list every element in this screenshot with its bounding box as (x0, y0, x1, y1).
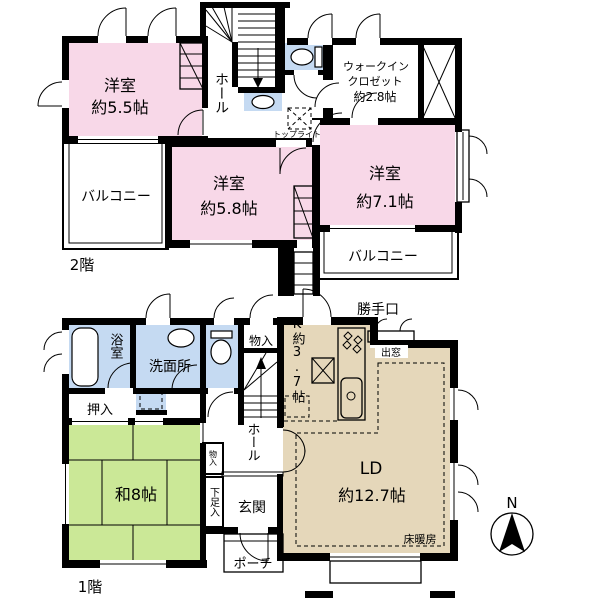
stairs-1f (244, 353, 277, 418)
label-balcony-right: バルコニー (348, 249, 418, 265)
label-heating: 床暖房 (404, 532, 437, 546)
label-skylight: トップライト (273, 130, 321, 139)
label-ld-name: LD (360, 459, 383, 479)
toilet-2f-icon (291, 47, 322, 67)
terrace-step (330, 561, 421, 583)
label-b55-name: 洋室 (104, 76, 136, 95)
label-shoes: 下足入 (208, 487, 220, 517)
label-washitsu: 和8帖 (115, 485, 157, 504)
label-wic-size: 約2.8帖 (353, 89, 396, 104)
label-wic-2: クロゼット (348, 75, 403, 88)
label-bath: 浴室 (108, 333, 124, 359)
fence-stub-left (305, 591, 333, 598)
label-kitchen: K約3.7帖 (290, 317, 306, 403)
stairs-up-arrow (256, 357, 266, 369)
label-b58-name: 洋室 (213, 174, 245, 193)
compass-needle (499, 513, 525, 552)
label-b71-name: 洋室 (369, 164, 401, 183)
washbasin-2f-icon (252, 96, 274, 109)
skylight-box (288, 108, 311, 129)
label-b71-size: 約7.1帖 (356, 192, 413, 211)
label-hall-1f: ホール (245, 423, 260, 462)
toilet-1f-icon (211, 331, 232, 364)
fence-stub-right (430, 591, 455, 598)
floorplan: 洋室 約5.5帖 ホール ウォークイン クロゼット 約2.8帖 洋室 約7.1帖… (0, 0, 600, 600)
compass: N (491, 494, 533, 555)
label-wic-1: ウォークイン (343, 60, 409, 73)
label-b58-size: 約5.8帖 (200, 199, 257, 218)
void-x-box (422, 44, 456, 120)
label-storage-small: 物入 (209, 449, 218, 466)
shaft-box (294, 252, 313, 294)
label-washroom: 洗面所 (149, 359, 191, 375)
label-entrance: 玄関 (238, 499, 266, 516)
washbasin-1f-icon (168, 329, 194, 347)
floor1-plan: 浴室 洗面所 物入 K約3.7帖 勝手口 出窓 押入 和8帖 物入 ホール 下足… (44, 289, 478, 598)
label-balcony-left: バルコニー (81, 189, 151, 205)
label-backdoor: 勝手口 (357, 302, 399, 318)
genkan-step (222, 472, 283, 476)
label-oshiire: 押入 (87, 403, 113, 418)
bathtub-icon (72, 328, 98, 386)
label-floor-2: 2階 (70, 256, 95, 274)
stairs-down-arrow (253, 78, 263, 88)
compass-north-label: N (506, 494, 517, 512)
label-floor-1: 1階 (78, 578, 103, 596)
label-ld-size: 約12.7帖 (338, 486, 406, 505)
label-b55-size: 約5.5帖 (91, 98, 148, 117)
floor2-plan: 洋室 約5.5帖 ホール ウォークイン クロゼット 約2.8帖 洋室 約7.1帖… (38, 2, 487, 296)
label-hall-2f: ホール (213, 72, 229, 114)
room-bedroom-5-8 (172, 147, 313, 240)
label-porch: ポーチ (233, 557, 272, 572)
label-storage: 物入 (249, 334, 273, 348)
label-baywindow: 出窓 (381, 346, 401, 359)
